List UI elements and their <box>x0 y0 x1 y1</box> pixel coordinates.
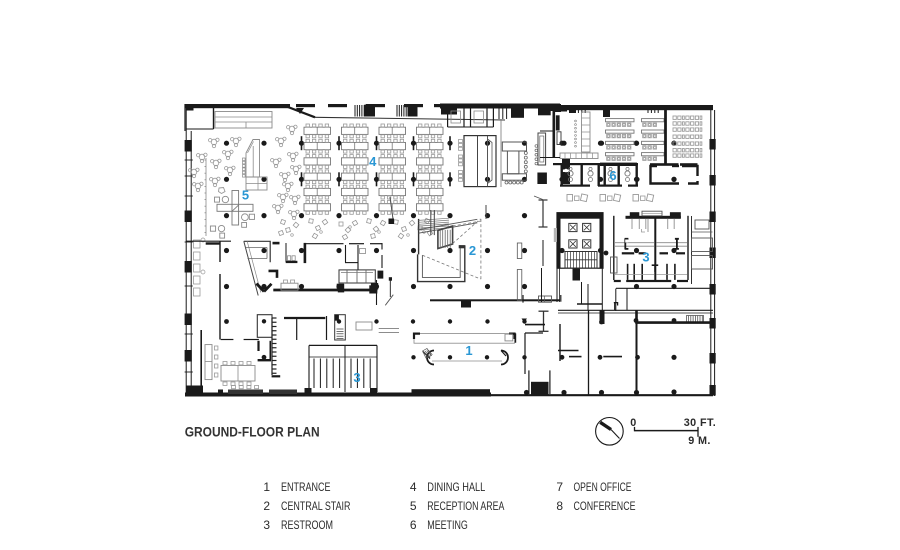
svg-text:2: 2 <box>469 243 476 258</box>
svg-text:1: 1 <box>465 343 472 358</box>
svg-text:0: 0 <box>630 417 636 429</box>
svg-text:CENTRAL STAIR: CENTRAL STAIR <box>281 499 351 513</box>
svg-text:7: 7 <box>556 480 563 494</box>
svg-text:6: 6 <box>410 518 417 532</box>
svg-text:OPEN OFFICE: OPEN OFFICE <box>574 480 632 494</box>
svg-text:4: 4 <box>410 480 417 494</box>
svg-text:3: 3 <box>642 250 649 265</box>
svg-text:5: 5 <box>242 188 249 203</box>
svg-text:GROUND-FLOOR PLAN: GROUND-FLOOR PLAN <box>185 424 320 440</box>
svg-text:8: 8 <box>556 499 563 513</box>
svg-text:6: 6 <box>609 168 616 183</box>
svg-text:2: 2 <box>263 499 270 513</box>
svg-text:3: 3 <box>263 518 270 532</box>
svg-text:RECEPTION AREA: RECEPTION AREA <box>427 499 504 513</box>
svg-text:ENTRANCE: ENTRANCE <box>281 480 331 494</box>
svg-text:4: 4 <box>369 154 377 169</box>
svg-text:DINING HALL: DINING HALL <box>427 480 485 494</box>
svg-text:30 FT.: 30 FT. <box>684 417 716 429</box>
svg-text:3: 3 <box>353 370 360 385</box>
svg-text:MEETING: MEETING <box>427 518 468 532</box>
svg-text:5: 5 <box>410 499 417 513</box>
svg-text:RESTROOM: RESTROOM <box>281 518 333 532</box>
svg-text:9 M.: 9 M. <box>688 435 711 447</box>
svg-text:1: 1 <box>263 480 270 494</box>
svg-text:CONFERENCE: CONFERENCE <box>574 499 636 513</box>
